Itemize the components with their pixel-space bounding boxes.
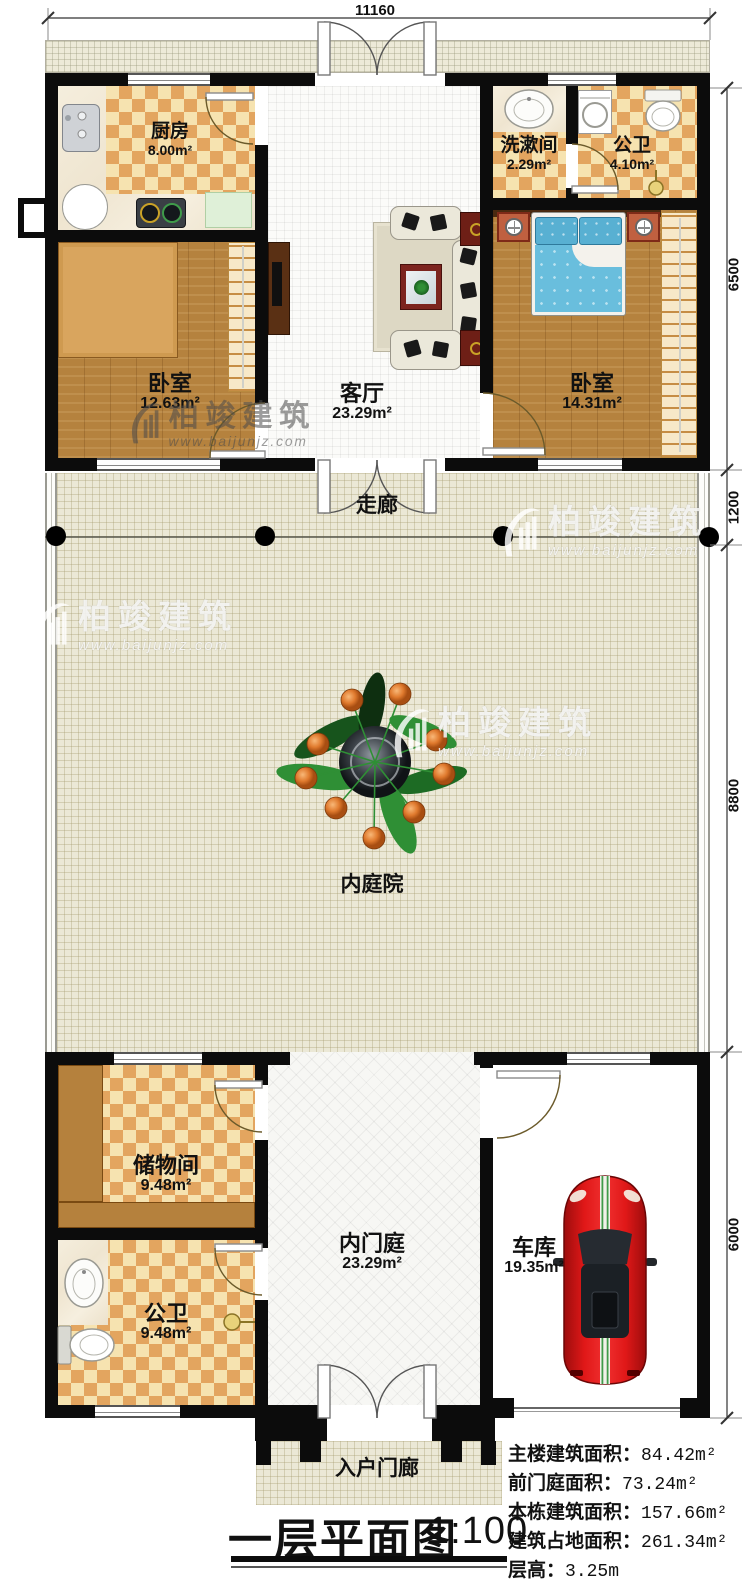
sofa-top (390, 206, 462, 240)
sofa-bottom (390, 330, 462, 370)
wall (493, 1398, 514, 1418)
wall (45, 230, 255, 242)
bed-blanket (535, 245, 622, 312)
inner-foyer-floor (268, 1052, 480, 1405)
room-label-bedroom-left: 卧室 12.63m² (140, 372, 200, 413)
wall (255, 145, 268, 403)
room-area: 19.35m² (504, 1260, 564, 1277)
room-label-living: 客厅 23.29m² (332, 382, 392, 423)
room-name: 客厅 (332, 382, 392, 405)
room-label-kitchen: 厨房 8.00m² (148, 122, 192, 158)
room-label-inner-foyer: 内门庭 23.29m² (339, 1232, 405, 1273)
door-opening-top (315, 73, 445, 86)
coffee-table (400, 264, 442, 310)
table-plant (414, 280, 429, 295)
room-area: 23.29m² (332, 406, 392, 423)
bed-fold (572, 245, 622, 267)
nightstand-lamp (635, 218, 653, 236)
room-name: 卧室 (562, 372, 622, 395)
window-bath-top (548, 73, 616, 86)
door-opening-entry (327, 1418, 432, 1441)
wall (255, 1300, 268, 1405)
wall (432, 1418, 495, 1441)
room-area: 14.31m² (562, 396, 622, 413)
info-label: 前门庭面积： (508, 1473, 622, 1494)
porch-pier (300, 1441, 321, 1462)
room-area: 8.00m² (148, 143, 192, 158)
info-value: 157.66m² (641, 1504, 727, 1524)
room-label-bath-top: 公卫 4.10m² (610, 136, 654, 172)
info-label: 主楼建筑面积： (508, 1444, 641, 1465)
room-label-bedroom-right: 卧室 14.31m² (562, 372, 622, 413)
wall (480, 1138, 493, 1405)
wall (432, 1405, 493, 1418)
room-area: 9.48m² (141, 1326, 192, 1343)
dimension-right-8800: 8800 (726, 768, 743, 824)
room-name: 卧室 (140, 372, 200, 395)
garage-door-front (514, 1407, 680, 1412)
info-label: 本栋建筑面积： (508, 1502, 641, 1523)
bed-pillow (535, 217, 578, 245)
title-underline (231, 1556, 507, 1562)
room-name: 公卫 (610, 136, 654, 156)
nightstand-left (497, 212, 530, 242)
info-value: 3.25m (565, 1562, 619, 1581)
room-label-corridor: 走廊 (356, 495, 398, 517)
wall (566, 188, 578, 198)
window-storage (114, 1052, 202, 1065)
dimension-right-1200: 1200 (726, 480, 743, 536)
room-label-storage: 储物间 9.48m² (133, 1154, 199, 1195)
room-label-courtyard: 内庭院 (341, 874, 404, 896)
room-area: 9.48m² (133, 1178, 199, 1195)
info-row: 本栋建筑面积：157.66m² (508, 1499, 727, 1528)
wall (480, 1052, 493, 1068)
dimension-right-6500: 6500 (726, 247, 743, 303)
room-area: 4.10m² (610, 157, 654, 172)
kitchen-stove (136, 198, 186, 228)
dimension-right-6000: 6000 (726, 1207, 743, 1263)
wardrobe-right (661, 212, 697, 458)
sofa-cushion (403, 339, 422, 358)
room-name: 洗漱间 (500, 136, 557, 156)
storage-shelf-left (58, 1065, 103, 1202)
wall (255, 1052, 268, 1085)
room-area: 2.29m² (500, 157, 557, 172)
bed-pillow (579, 217, 622, 245)
info-value: 84.42m² (641, 1446, 717, 1466)
nightstand-lamp (505, 218, 523, 236)
room-name: 走廊 (356, 495, 398, 517)
sofa-cushion (460, 282, 477, 299)
info-block: 主楼建筑面积：84.42m² 前门庭面积：73.24m² 本栋建筑面积：157.… (508, 1441, 727, 1581)
wall (45, 1405, 95, 1418)
wall (566, 86, 578, 144)
porch-pier (256, 1441, 271, 1465)
kitchen-board (205, 192, 252, 228)
window-bedroom-right (538, 458, 622, 471)
sofa-cushion (432, 341, 449, 358)
room-name: 公卫 (141, 1302, 192, 1325)
courtyard-floor (57, 473, 697, 1052)
porch-pier (481, 1441, 496, 1465)
door-opening-living-corridor (315, 458, 445, 471)
wall (45, 1228, 268, 1240)
wall (480, 86, 493, 393)
info-label: 建筑占地面积： (508, 1531, 641, 1552)
porch-pier (441, 1441, 462, 1462)
room-name: 储物间 (133, 1154, 199, 1177)
storage-shelf-bottom (58, 1202, 255, 1228)
floor-plan: 厨房 8.00m² 洗漱间 2.29m² 公卫 4.10m² 卧室 12.63m… (0, 0, 750, 1581)
wall (255, 1418, 327, 1441)
bed-right (531, 212, 626, 316)
wall (45, 73, 58, 471)
courtyard-fence-left (45, 473, 57, 1052)
nightstand-right (627, 212, 660, 242)
info-row: 主楼建筑面积：84.42m² (508, 1441, 727, 1470)
room-name: 内庭院 (341, 874, 404, 896)
dimension-top: 11160 (340, 2, 410, 19)
room-name: 厨房 (148, 122, 192, 142)
title-underline-thin (231, 1566, 507, 1568)
wall (180, 1405, 327, 1418)
room-label-garage: 车库 19.35m² (504, 1236, 564, 1277)
room-label-entry-porch: 入户门廊 (335, 1458, 419, 1480)
room-area: 23.29m² (339, 1256, 405, 1273)
info-label: 层高： (508, 1560, 565, 1581)
wall-niche (18, 198, 50, 238)
room-area: 12.63m² (140, 396, 200, 413)
bed-left (58, 242, 178, 358)
washing-machine (578, 90, 612, 134)
info-row: 层高：3.25m (508, 1557, 727, 1581)
room-name: 内门庭 (339, 1232, 405, 1255)
wall (493, 198, 697, 210)
washroom-vanity-counter (493, 86, 566, 132)
courtyard-fence-right (697, 473, 710, 1052)
room-name: 车库 (504, 1236, 564, 1259)
room-label-washroom: 洗漱间 2.29m² (500, 136, 557, 172)
room-name: 入户门廊 (335, 1458, 419, 1480)
tv-icon (272, 262, 282, 306)
wall (680, 1398, 710, 1418)
window-bath-bottom (95, 1405, 180, 1418)
wall (697, 1052, 710, 1418)
wardrobe-left (228, 242, 256, 392)
info-value: 261.34m² (641, 1533, 727, 1553)
wall (202, 1052, 290, 1065)
wall (697, 73, 710, 471)
sofa-cushion (401, 212, 420, 231)
kitchen-round-table (62, 184, 108, 230)
sofa-cushion (430, 214, 448, 232)
kitchen-sink (62, 104, 100, 152)
window-bedroom-left (97, 458, 220, 471)
window-kitchen (128, 73, 210, 86)
sofa-cushion (459, 247, 477, 265)
room-label-bath-bottom: 公卫 9.48m² (141, 1302, 192, 1343)
info-value: 73.24m² (622, 1475, 698, 1495)
info-row: 建筑占地面积：261.34m² (508, 1528, 727, 1557)
garage-door-back (567, 1052, 650, 1065)
back-porch-floor (45, 40, 710, 73)
bath-bottom-vanity (58, 1240, 108, 1325)
info-row: 前门庭面积：73.24m² (508, 1470, 727, 1499)
